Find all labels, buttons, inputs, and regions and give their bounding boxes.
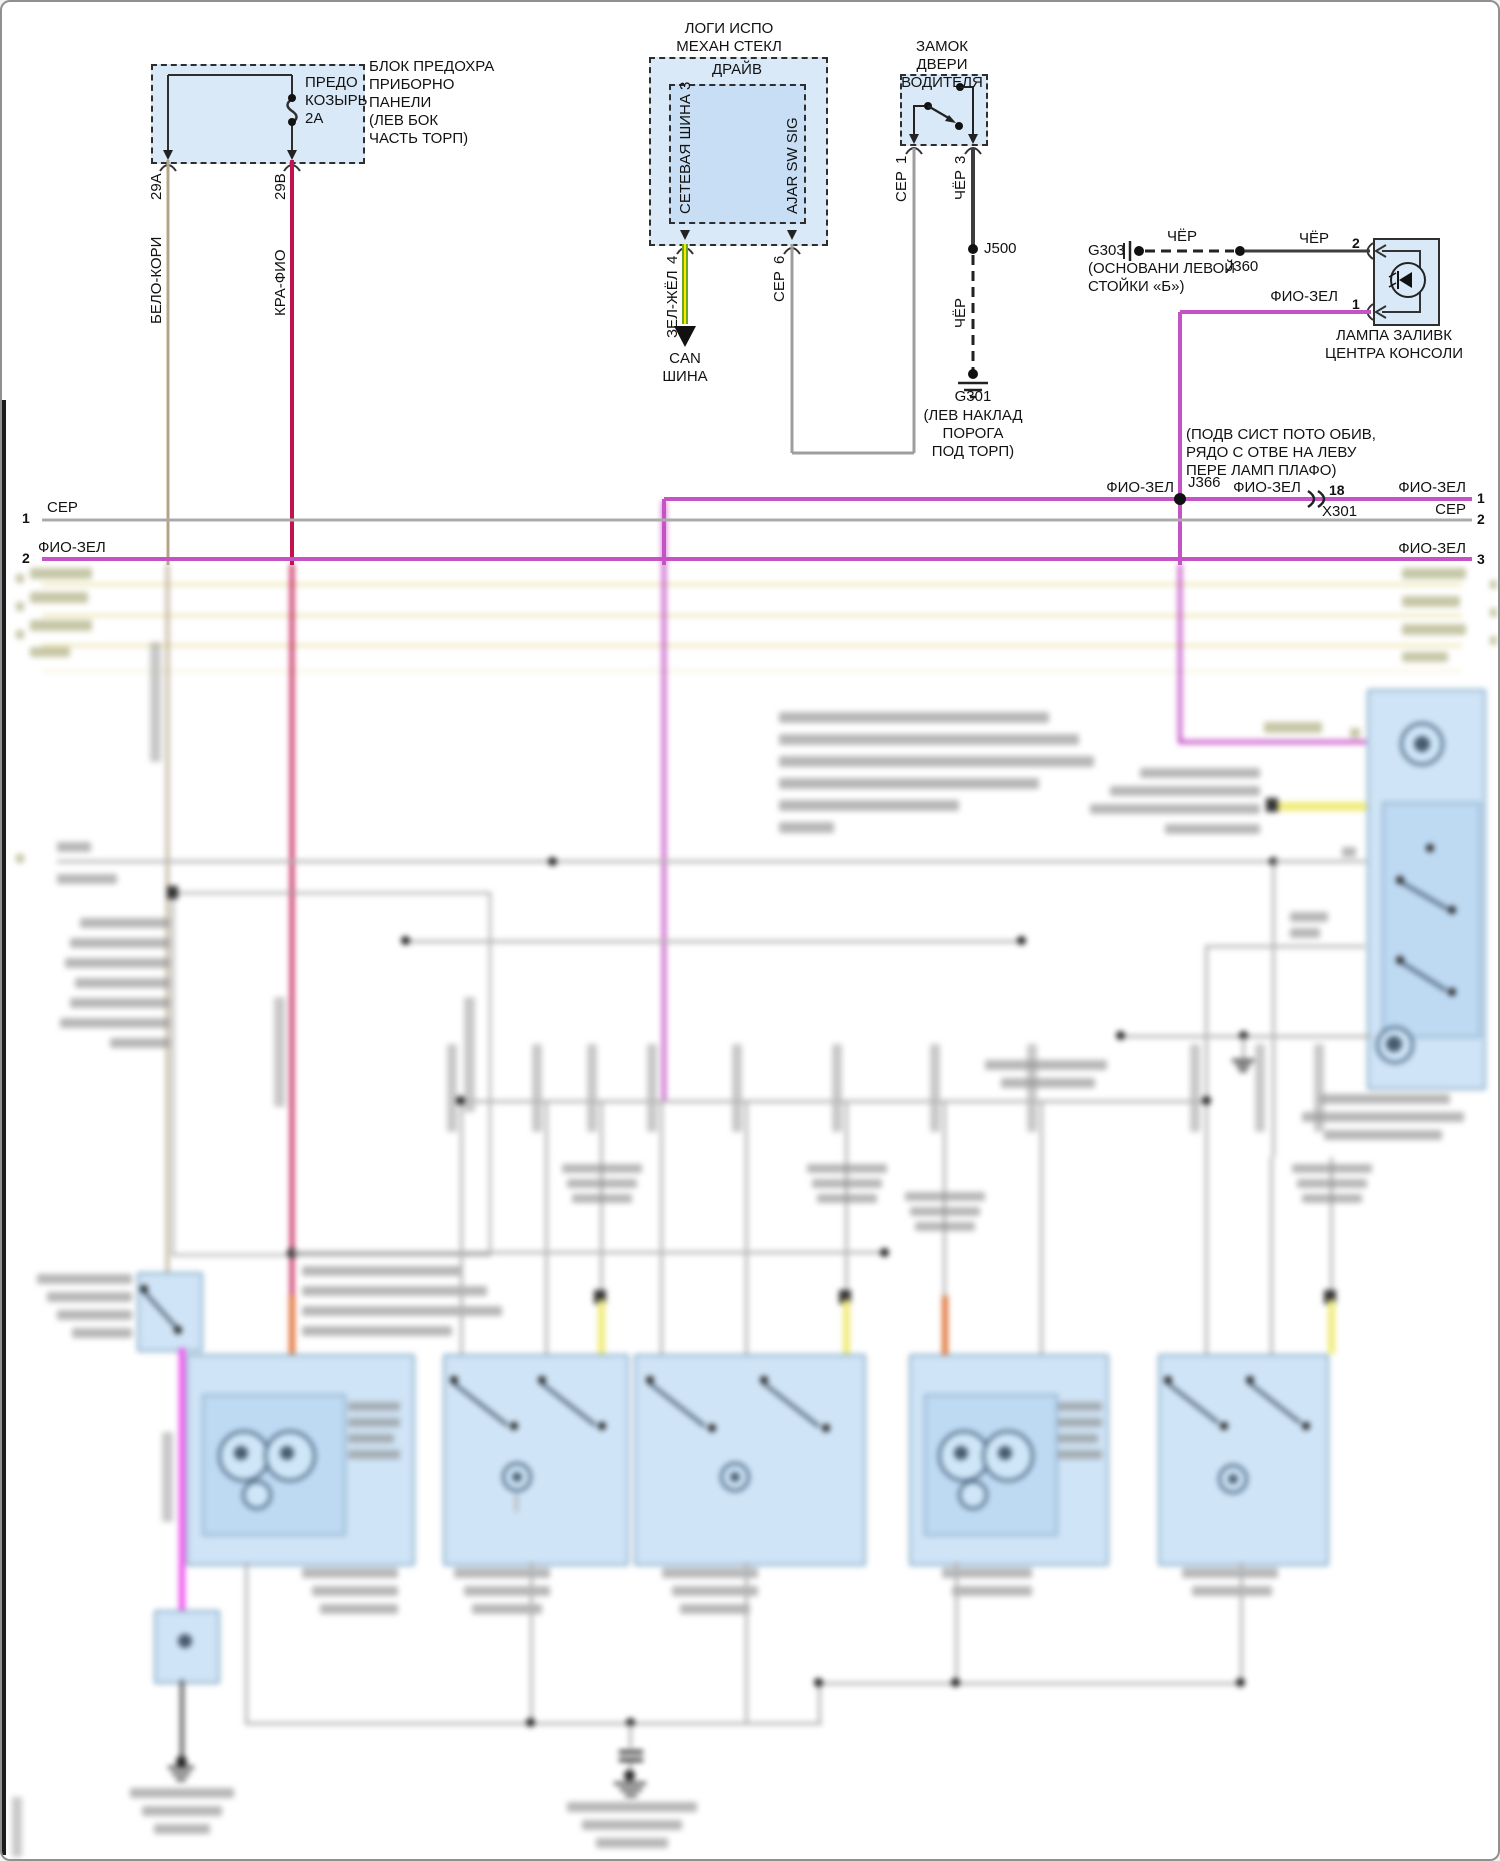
bus-right-3-num: 3	[1477, 550, 1485, 568]
j366-splice-dot	[1174, 493, 1186, 505]
wire-label-fio-zel-right: ФИО-ЗЕЛ	[1217, 479, 1317, 497]
g301-note: (ЛЕВ НАКЛАД ПОРОГА ПОД ТОРП)	[898, 407, 1048, 461]
pin-3-door: 3	[953, 156, 969, 164]
bus-right-2-num: 2	[1477, 510, 1485, 528]
j366-label: J366	[1188, 474, 1221, 492]
wire-label-chyor-ground: ЧЁР	[953, 298, 969, 328]
fuse-node-dot	[288, 94, 296, 102]
wire-label-chyor-g303: ЧЁР	[1157, 228, 1207, 246]
j500-splice-dot	[968, 244, 978, 254]
console-lamp-led-icon	[1376, 245, 1425, 318]
wire-label-chyor-door: ЧЁР	[953, 170, 969, 200]
wire-label-belo-kori: БЕЛО-КОРИ	[149, 237, 165, 324]
wire-label-ser-pin6: СЕР	[772, 271, 788, 302]
bus-left-1-wire: СЕР	[47, 499, 78, 517]
signal-ajar-sw-sig: AJAR SW SIG	[785, 117, 801, 214]
can-bus-label: CAN ШИНА	[653, 350, 717, 386]
fuse-box-label: БЛОК ПРЕДОХРА ПРИБОРНО ПАНЕЛИ (ЛЕВ БОК Ч…	[369, 58, 494, 148]
fuse-label: ПРЕДО КОЗЫРЬ 2А	[305, 74, 367, 128]
j360-splice-dot	[1235, 246, 1245, 256]
bus-left-2-wire: ФИО-ЗЕЛ	[38, 539, 106, 557]
bus-right-2-wire: СЕР	[1406, 501, 1466, 519]
j360-label: J360	[1217, 258, 1267, 276]
pin-1-door: 1	[894, 156, 910, 164]
window-module-sub: ДРАЙВ	[669, 61, 805, 79]
wiring-diagram-page: БЛОК ПРЕДОХРА ПРИБОРНО ПАНЕЛИ (ЛЕВ БОК Ч…	[0, 0, 1500, 1861]
pin-29b: 29В	[273, 173, 289, 200]
g301-label: G301	[943, 388, 1003, 406]
x301-pin: 18	[1329, 481, 1345, 499]
pin-29a: 29А	[149, 173, 165, 200]
bus-right-1-num: 1	[1477, 489, 1485, 507]
signal-setevaya-shina: СЕТЕВАЯ ШИНА 3	[678, 82, 694, 214]
bus-right-1-wire: ФИО-ЗЕЛ	[1366, 479, 1466, 497]
pin-2-lamp: 2	[1352, 234, 1360, 252]
bus-left-2-num: 2	[22, 549, 30, 567]
door-lock-title: ЗАМОК ДВЕРИ ВОДИТЕЛЯ	[890, 38, 994, 92]
window-module-title: ЛОГИ ИСПО МЕХАН СТЕКЛ	[649, 20, 809, 56]
pin-4: 4	[665, 256, 681, 264]
bus-right-3-wire: ФИО-ЗЕЛ	[1366, 540, 1466, 558]
wire-label-ser-door: СЕР	[894, 171, 910, 202]
wire-label-kra-fio: КРА-ФИО	[273, 249, 289, 316]
pin-1-lamp: 1	[1352, 295, 1360, 313]
g303-note: (ОСНОВАНИ ЛЕВОЙ СТОЙКИ «Б»)	[1088, 260, 1235, 296]
wire-label-fio-zel-lamp: ФИО-ЗЕЛ	[1238, 288, 1338, 306]
x301-label: X301	[1322, 503, 1357, 521]
fuse-internal-wiring	[168, 75, 297, 152]
bus-left-1-num: 1	[22, 509, 30, 527]
console-lamp-label: ЛАМПА ЗАЛИВК ЦЕНТРА КОНСОЛИ	[1304, 327, 1484, 363]
g303-ground-icon	[1124, 241, 1144, 261]
pin-6: 6	[772, 256, 788, 264]
schematic-linework	[2, 2, 1500, 1861]
wire-label-zel-zhel: ЗЕЛ-ЖЁЛ	[665, 270, 681, 338]
g303-label: G303	[1088, 242, 1125, 260]
wire-label-fio-zel-left: ФИО-ЗЕЛ	[1074, 479, 1174, 497]
fuse-node-dot	[288, 118, 296, 126]
wire-label-chyor-j360: ЧЁР	[1289, 230, 1339, 248]
j500-label: J500	[984, 240, 1017, 258]
j366-note: (ПОДВ СИСТ ПОТО ОБИВ, РЯДО С ОТВЕ НА ЛЕВ…	[1186, 426, 1376, 480]
